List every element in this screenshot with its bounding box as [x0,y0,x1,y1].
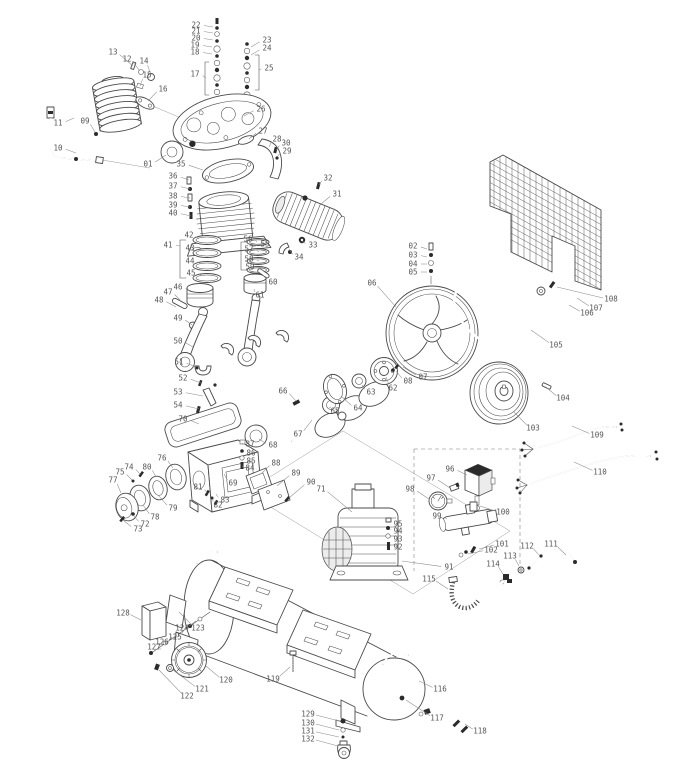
part-label: 96 [445,465,455,474]
leader-line [259,69,261,70]
part-label: 37 [168,182,177,191]
rod-caps-and-shells [195,330,289,413]
part-label: 117 [430,714,444,723]
part-label: 38 [168,192,178,201]
pipe-nut [518,567,524,573]
part-label: 87 [245,440,254,449]
part-label: 66 [278,387,288,396]
part-label: 06 [367,279,377,288]
part-label: 25 [264,64,273,73]
leader-line [557,547,566,555]
part-label: 90 [306,478,316,487]
cylinder-head [167,85,277,160]
part-label: 76 [157,454,167,463]
leader-line [181,214,191,216]
part-label: 64 [353,404,363,413]
part-label: 29 [282,147,291,156]
leader-line [203,46,212,47]
pulley-key [542,382,552,389]
air-compressor-exploded-diagram: 0102030405060708091011121314151617181920… [0,0,686,768]
outlet-manifold [437,500,499,539]
steel-outlet-pipe [527,553,577,570]
part-label: 115 [422,575,436,584]
part-label: 51 [174,358,183,367]
part-label: 54 [173,401,183,410]
part-label: 14 [139,57,149,66]
part-label: 02 [408,242,417,251]
part-label: 10 [53,144,63,153]
part-label: 49 [173,314,182,323]
leader-line [117,484,121,493]
part-label: 74 [124,463,134,472]
leader-line [378,286,396,307]
part-label: 17 [190,70,199,79]
part-label: 65 [330,407,339,416]
leader-line [327,492,352,512]
part-label: 61 [255,291,264,300]
part-label: 60 [268,278,278,287]
part-label: 95 [393,520,402,529]
part-label: 92 [393,543,402,552]
part-label: 30 [281,139,291,148]
part-label: 118 [473,727,487,736]
part-label: 24 [262,44,272,53]
piston-large [187,284,213,308]
flywheel-bolt-set [429,243,434,284]
leader-line [547,388,556,396]
leader-line [421,247,427,249]
part-label: 113 [503,552,517,561]
part-label: 114 [486,560,500,569]
leader-line [438,480,450,488]
part-label: 55 [260,240,269,249]
part-label: 124 [175,624,189,633]
part-label: 119 [266,675,280,684]
part-label: 43 [185,244,194,253]
leader-line [203,53,212,54]
valve-kit-bracket-17 [205,62,209,95]
pressure-switch [465,464,495,511]
leader-line [316,724,339,730]
part-label: 13 [108,48,117,57]
part-label: 79 [168,504,177,513]
part-label: 27 [258,127,267,136]
leader-line [189,165,203,170]
part-label: 85 [246,457,255,466]
part-label: 89 [291,469,300,478]
crank-key [292,399,300,405]
leader-line [204,32,213,33]
valve-kit-bracket-25 [255,55,259,90]
part-label: 12 [122,55,131,64]
part-label: 46 [173,283,183,292]
leader-line [206,666,219,677]
leader-line [152,470,156,477]
part-label: 33 [308,241,317,250]
part-label: 47 [163,288,172,297]
part-label: 40 [168,209,178,218]
part-label: 78 [150,513,160,522]
power-cables [516,423,659,495]
leader-line [572,426,589,433]
part-label: 01 [143,160,152,169]
exploded-parts-diagram-canvas: 0102030405060708091011121314151617181920… [0,0,686,768]
cylinder-block [181,188,271,256]
part-label: 53 [173,388,182,397]
part-label: 110 [593,468,607,477]
part-label: 26 [256,105,266,114]
part-label: 88 [271,459,281,468]
tube-nut [94,132,98,136]
part-label: 70 [178,415,188,424]
part-label: 69 [228,479,237,488]
leader-line [316,740,338,746]
leader-line [421,256,427,257]
leader-line [203,76,206,78]
part-label: 62 [388,384,397,393]
leader-line [569,305,580,311]
part-label: 41 [163,241,172,250]
leader-line [289,485,305,498]
part-label: 68 [268,441,278,450]
part-label: 50 [173,337,183,346]
axle-washer [167,665,174,672]
part-label: 08 [403,377,413,386]
part-label: 56 [243,235,253,244]
leader-line [148,92,157,101]
leader-line [316,732,339,737]
part-label: 48 [154,296,164,305]
part-label: 63 [366,388,375,397]
part-label: 132 [301,735,315,744]
relief-valve-fitting [450,482,460,491]
leader-line [127,474,132,480]
leader-line [316,715,339,721]
flexible-braided-hose [449,576,504,608]
part-label: 129 [301,710,315,719]
part-label: 45 [186,269,195,278]
part-label: 57 [244,245,253,254]
unloader-tube [47,107,103,164]
flywheel [386,286,478,380]
part-label: 102 [484,546,498,555]
head-gasket [200,155,255,187]
part-label: 59 [245,263,254,272]
part-label: 35 [176,160,185,169]
leader-line [191,379,201,383]
part-label: 120 [219,676,233,685]
leader-line [321,196,330,204]
part-label: 07 [418,373,427,382]
leader-line [402,561,441,566]
part-label: 97 [426,474,435,483]
leader-line [577,298,589,306]
leader-line [417,491,429,499]
part-label: 67 [293,430,302,439]
leader-line [251,50,260,55]
part-label: 127 [147,643,161,652]
axle-bolt [154,663,160,670]
part-label: 121 [195,685,209,694]
part-label: 109 [590,431,604,440]
leader-line [533,549,539,555]
part-label: 09 [80,117,89,126]
leader-line [574,462,593,470]
leader-line [531,330,549,343]
part-label: 91 [444,563,453,572]
part-label: 81 [193,483,202,492]
belt-guard-grille [482,150,608,300]
leader-line [436,581,448,589]
part-label: 128 [116,609,130,618]
leader-line [66,149,76,153]
part-label: 77 [108,476,117,485]
part-label: 11 [53,119,62,128]
part-label: 44 [185,257,195,266]
part-label: 122 [180,692,194,701]
motor-pulley [470,362,528,424]
part-label: 103 [526,424,540,433]
part-label: 73 [133,525,142,534]
part-label: 123 [191,624,205,633]
part-label: 16 [158,85,168,94]
part-label: 104 [556,394,570,403]
part-label: 34 [294,253,304,262]
part-label: 05 [408,268,417,277]
part-label: 112 [520,542,534,551]
part-label: 36 [168,172,178,181]
part-label: 111 [544,540,558,549]
part-label: 99 [432,512,441,521]
part-label: 42 [184,231,193,240]
leader-line [66,118,74,122]
pressure-gauge [429,492,452,510]
part-label: 100 [496,508,510,517]
part-label: 15 [142,71,151,80]
part-label: 83 [220,496,229,505]
part-label: 107 [589,304,603,313]
part-label: 105 [549,341,563,350]
part-label: 03 [408,251,417,260]
leader-line [176,245,180,246]
part-label: 22 [191,21,200,30]
part-label: 80 [142,463,152,472]
part-label: 108 [604,295,618,304]
leader-line [204,26,213,27]
leader-line [304,420,312,431]
leader-line [251,42,260,47]
part-label: 93 [393,535,402,544]
connecting-rods [176,294,261,372]
part-label: 71 [316,485,325,494]
drain-hole [400,696,405,701]
part-label: 32 [323,174,332,183]
leader-line [136,469,140,474]
part-label: 52 [178,374,187,383]
part-label: 31 [332,190,341,199]
leader-line [204,39,213,40]
part-label: 98 [405,485,415,494]
leader-line [186,393,203,396]
leader-line [90,124,95,132]
oil-dipper [203,388,216,406]
leader-line [186,406,199,409]
part-label: 116 [433,685,447,694]
part-label: 86 [246,449,256,458]
leader-line [289,394,296,401]
guard-bolt [537,281,555,295]
leader-line [130,615,141,620]
part-label: 125 [168,633,182,642]
